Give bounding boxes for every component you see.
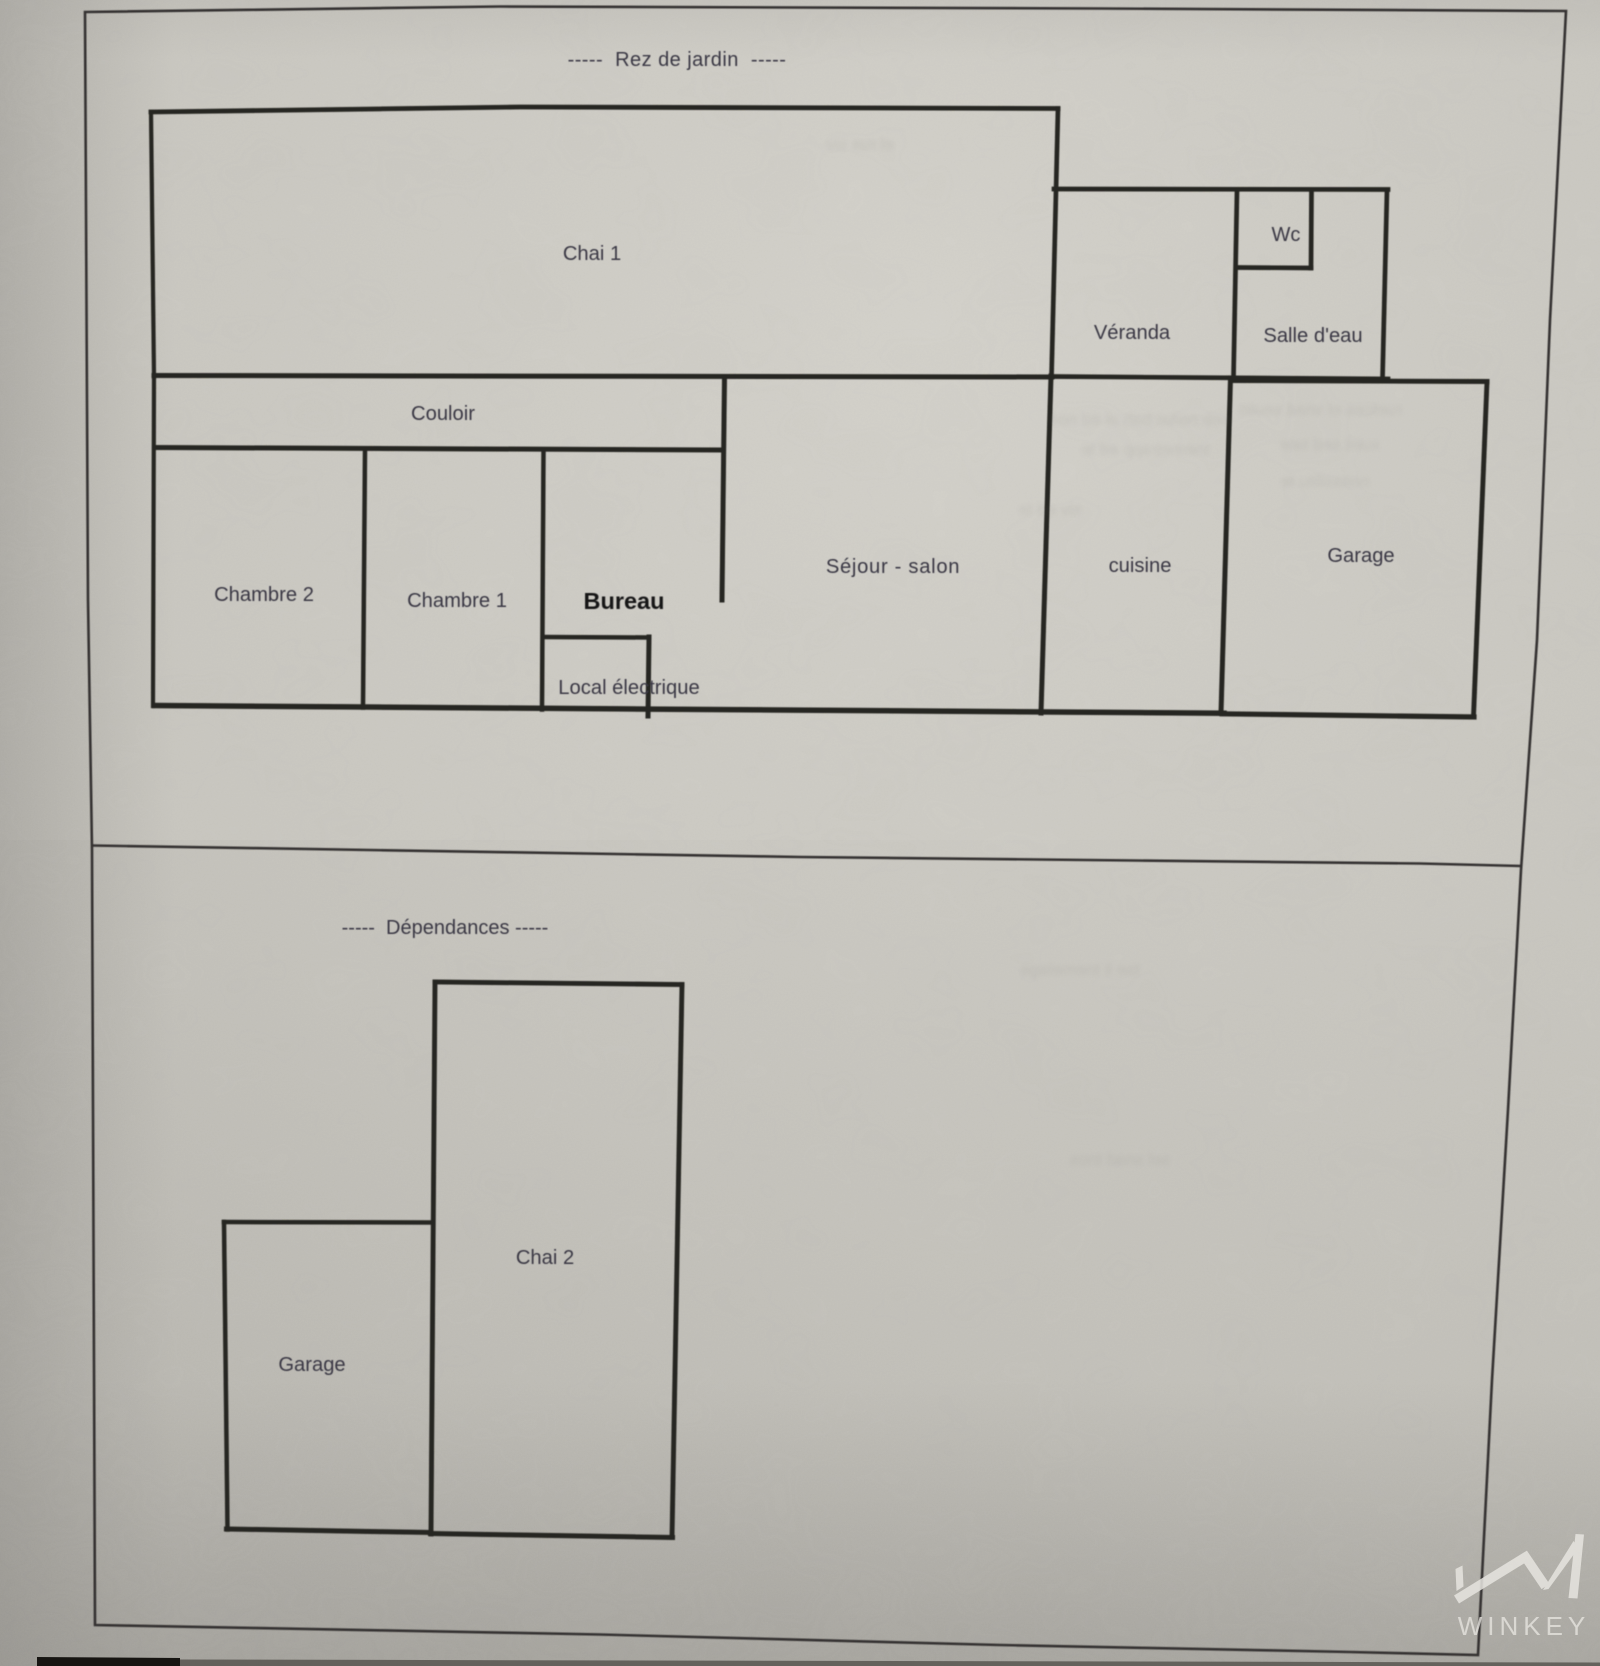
svg-text:xueil sed tate: xueil sed tate xyxy=(1280,435,1380,454)
svg-text:sel snad tnos: sel snad tnos xyxy=(1070,1150,1170,1169)
svg-text:Garage: Garage xyxy=(1327,545,1394,567)
svg-text:----- Rez de jardin -----: ----- Rez de jardin ----- xyxy=(568,49,787,71)
svg-text:tse li tnemelage: tse li tnemelage xyxy=(1020,960,1139,979)
svg-text:WINKEY: WINKEY xyxy=(1458,1611,1591,1641)
svg-text:Local électrique: Local électrique xyxy=(558,677,699,699)
svg-text:Salle d'eau: Salle d'eau xyxy=(1263,325,1362,347)
svg-text:seb noitat bah al ed noit: seb noitat bah al ed noit xyxy=(1049,410,1230,429)
svg-text:Chai 2: Chai 2 xyxy=(516,1247,574,1269)
svg-text:siv ed te: siv ed te xyxy=(1018,500,1081,519)
svg-text:noitasilitu te: noitasilitu te xyxy=(1280,472,1370,491)
svg-text:Bureau: Bureau xyxy=(584,588,665,614)
svg-text:tnemetrapp ed te: tnemetrapp ed te xyxy=(1081,440,1210,459)
svg-text:Wc: Wc xyxy=(1272,224,1301,246)
svg-text:Garage: Garage xyxy=(278,1354,345,1376)
svg-text:Véranda: Véranda xyxy=(1094,322,1171,344)
svg-text:Séjour - salon: Séjour - salon xyxy=(826,556,960,578)
svg-text:ruetces el snad seutis: ruetces el snad seutis xyxy=(1238,400,1402,419)
svg-text:----- Dépendances -----: ----- Dépendances ----- xyxy=(342,917,549,939)
svg-text:Couloir: Couloir xyxy=(411,403,475,425)
svg-text:Chambre 2: Chambre 2 xyxy=(214,584,314,606)
svg-text:Chambre 1: Chambre 1 xyxy=(407,590,507,612)
svg-text:el rus siv: el rus siv xyxy=(826,135,894,154)
svg-text:cuisine: cuisine xyxy=(1109,555,1172,577)
svg-text:Chai 1: Chai 1 xyxy=(563,243,621,265)
